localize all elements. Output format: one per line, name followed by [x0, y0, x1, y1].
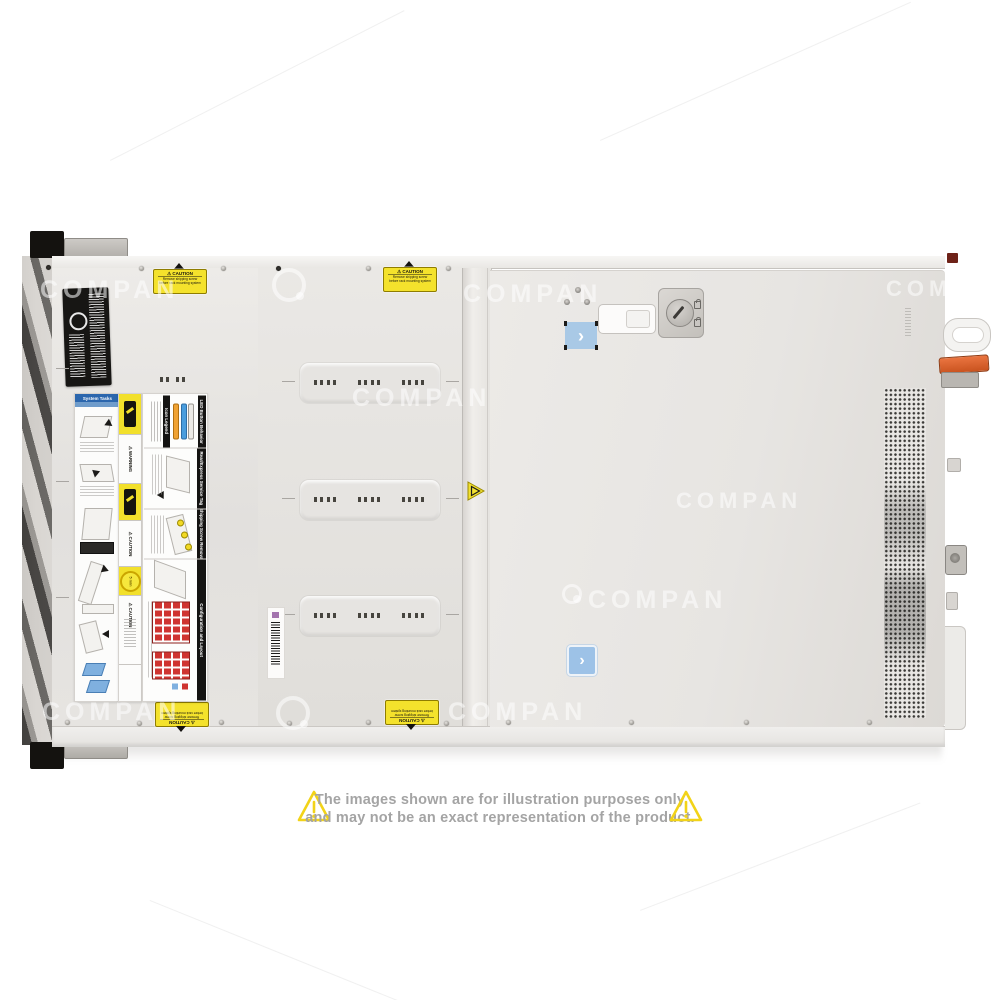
vent-slots [176, 377, 185, 382]
system-tasks-label: System Tasks [74, 393, 120, 702]
caution-title: ⚠ CAUTION [388, 269, 432, 275]
icon-legend-glyphs [151, 401, 161, 441]
thumbscrew [945, 545, 967, 575]
screw-dot-icon [185, 543, 192, 550]
screw [366, 720, 371, 725]
watermark-logo-icon [276, 696, 310, 730]
five-min-block: 5 min [119, 567, 141, 596]
blue-touchpoint-latch: › [565, 322, 597, 349]
caution-label-text: ⚠ CAUTION Remove shipping screw before r… [384, 269, 436, 292]
chevron-right-icon: › [578, 327, 584, 345]
diagram-cell [78, 504, 116, 556]
barcode-sticker [267, 607, 285, 679]
caution-text-block: ⚠ CAUTION [119, 596, 141, 665]
screw [744, 720, 749, 725]
watermark-text: COMPAN [463, 280, 602, 309]
warning-triangle-sticker [466, 480, 486, 502]
shipping-screw-section: Shipping Screw Removal [144, 509, 206, 560]
watermark-logo-icon [272, 268, 306, 302]
caution-text-block: ⚠ CAUTION [119, 521, 141, 567]
drive-latch-wedges [22, 256, 52, 745]
barcode-color-mark [272, 612, 279, 618]
alignment-dash [446, 498, 459, 499]
psu-handle [943, 318, 991, 352]
cover-keylock [658, 288, 704, 338]
service-info-rotated: LED Button Behavior Icon Legend Rear/Exp… [144, 395, 206, 700]
unlocked-icon [694, 319, 701, 327]
watermark-text: COMPAN [676, 488, 802, 514]
watermark-diagonal-line [150, 900, 429, 1000]
watermark-text: COMPAN [352, 384, 491, 413]
service-tag-section: Rear/Express Service Tag [144, 448, 206, 509]
product-photo-server-top-view: ⚠ CAUTION Remove shipping screw before r… [0, 0, 1000, 1000]
watermark-text: COMPAN [42, 698, 181, 727]
service-tag-title: Rear/Express Service Tag [199, 451, 204, 505]
shipping-screw-microtext [150, 515, 164, 553]
screw-dot-icon [181, 531, 188, 538]
alignment-dash [56, 481, 69, 482]
tip-hazard-pictogram [119, 484, 141, 521]
alignment-dash [282, 381, 295, 382]
caution-title: ⚠ CAUTION [390, 717, 434, 723]
service-tag-diagram [166, 455, 190, 493]
configuration-layout-title: Configuration and Layout [199, 603, 204, 657]
psu-handle-opening [952, 327, 984, 343]
alignment-dash [282, 498, 295, 499]
diagram-cell [78, 560, 116, 614]
caution-label: ⚠ CAUTION Remove shipping screw before r… [385, 700, 439, 725]
warning-strip-label: ⚠ WARNING ⚠ CAUTION 5 min ⚠ CAUTION [118, 393, 142, 702]
watermark-text: COMPAN [448, 698, 587, 727]
blue-touchpoint-square: › [567, 645, 597, 676]
caution-text: ⚠ CAUTION [128, 531, 133, 556]
configuration-layout-section: Configuration and Layout [144, 559, 206, 700]
led-pills [172, 395, 198, 447]
hazard-icon [124, 489, 136, 515]
diagram-cell-blue [78, 660, 116, 698]
screw [867, 720, 872, 725]
watermark-diagonal-line [110, 10, 404, 161]
cover-release-slider [598, 304, 656, 334]
alignment-dash [446, 381, 459, 382]
config-iso-diagram [154, 560, 186, 600]
rear-red-tab [947, 253, 958, 263]
service-tag-microtext [150, 454, 162, 494]
diagram-cell [78, 458, 116, 502]
legend-red-swatch [182, 683, 188, 689]
caution-label: ⚠ CAUTION Remove shipping screw before r… [383, 267, 437, 292]
hazard-icon [124, 401, 136, 427]
locked-icon [694, 301, 701, 309]
watermark-text: COMPAN [40, 276, 179, 305]
icon-legend-title: Icon Legend [164, 408, 169, 434]
system-tasks-title: System Tasks [82, 396, 111, 401]
disclaimer-warning-icon [668, 789, 704, 829]
screw-dot-icon [177, 519, 184, 526]
regulatory-microtext [88, 293, 106, 377]
alignment-dash [56, 597, 69, 598]
drive-bay-grid [152, 601, 190, 643]
watermark-text: COMPAN [886, 276, 1000, 302]
five-min-icon: 5 min [120, 571, 141, 592]
vent-slots [160, 377, 169, 382]
drive-bay-grid [152, 651, 190, 679]
rear-tab [946, 592, 958, 610]
rack-ear-top [30, 231, 64, 258]
led-button-behavior-section: LED Button Behavior Icon Legend [144, 395, 206, 448]
screw [629, 720, 634, 725]
tip-hazard-pictogram [119, 394, 141, 435]
etched-part-number [905, 308, 911, 338]
system-tasks-header: System Tasks [75, 394, 119, 402]
system-tasks-subheader [75, 402, 119, 407]
barcode-lines [271, 622, 280, 666]
screw [139, 266, 144, 271]
caution-line2: before rack mounting system [384, 279, 436, 283]
vent-shading [884, 388, 926, 718]
warning-text: ⚠ WARNING [128, 446, 133, 472]
caution-label-text: ⚠ CAUTION Remove shipping screw before r… [386, 700, 438, 723]
led-pill-off [189, 403, 195, 439]
cover-recess-handle [300, 596, 440, 636]
slider-grip [626, 310, 650, 328]
diagram-cell [78, 412, 116, 456]
chevron-right-icon: › [579, 653, 584, 669]
watermark-text: COMPAN [588, 586, 727, 615]
certification-logo-icon [69, 312, 88, 331]
psu-vent-perforation [884, 388, 926, 718]
watermark-diagonal-line [600, 2, 911, 141]
warning-text-block: ⚠ WARNING [119, 435, 141, 484]
led-button-behavior-title: LED Button Behavior [200, 399, 205, 443]
led-pill-amber [174, 403, 180, 439]
alignment-dash [56, 368, 69, 369]
service-info-label: LED Button Behavior Icon Legend Rear/Exp… [142, 393, 208, 702]
screw [366, 266, 371, 271]
pointer-icon [406, 724, 416, 730]
led-pill-blue [181, 403, 187, 439]
caution-line2: before rack mounting system [386, 709, 438, 713]
legend-blue-swatch [172, 683, 178, 689]
screw [446, 266, 451, 271]
caution-microtext [124, 619, 136, 649]
five-min-text: 5 min [128, 576, 132, 586]
screw [46, 265, 51, 270]
alignment-dash [446, 614, 459, 615]
shipping-screw-title: Shipping Screw Removal [199, 509, 204, 560]
rear-tab [947, 458, 961, 472]
screw [221, 266, 226, 271]
rear-corner-step [945, 626, 966, 730]
config-microtext [146, 601, 152, 677]
caution-line1: Remove shipping screw [386, 713, 438, 717]
regulatory-microtext [69, 334, 86, 378]
front-bezel-strip [22, 256, 52, 745]
watermark-logo-icon [562, 584, 582, 604]
rear-latch [941, 372, 979, 388]
cover-recess-handle [300, 480, 440, 520]
diagram-cell [78, 618, 116, 658]
screw [219, 720, 224, 725]
